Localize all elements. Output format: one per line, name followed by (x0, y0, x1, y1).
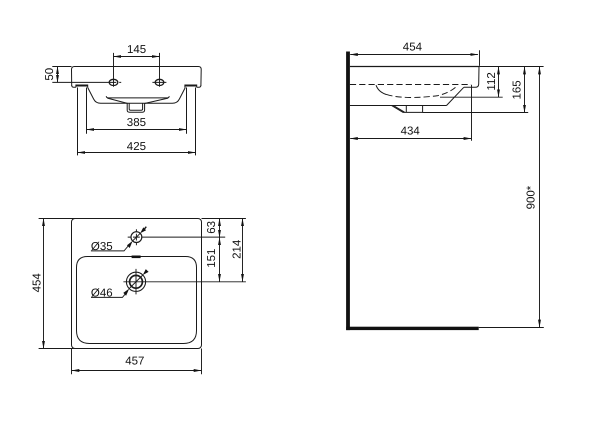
svg-text:425: 425 (127, 141, 146, 153)
svg-text:434: 434 (401, 126, 421, 138)
svg-text:145: 145 (127, 44, 146, 56)
svg-text:Ø46: Ø46 (91, 287, 113, 299)
svg-text:454: 454 (32, 273, 44, 293)
svg-text:385: 385 (127, 117, 146, 129)
svg-text:454: 454 (403, 41, 423, 53)
svg-text:214: 214 (232, 239, 244, 259)
svg-text:900*: 900* (526, 185, 538, 209)
svg-text:165: 165 (512, 80, 524, 99)
svg-text:Ø35: Ø35 (91, 241, 113, 253)
svg-text:151: 151 (206, 249, 218, 268)
svg-text:457: 457 (125, 356, 144, 368)
svg-text:50: 50 (44, 68, 56, 81)
svg-text:63: 63 (206, 221, 218, 234)
svg-text:112: 112 (486, 72, 498, 90)
